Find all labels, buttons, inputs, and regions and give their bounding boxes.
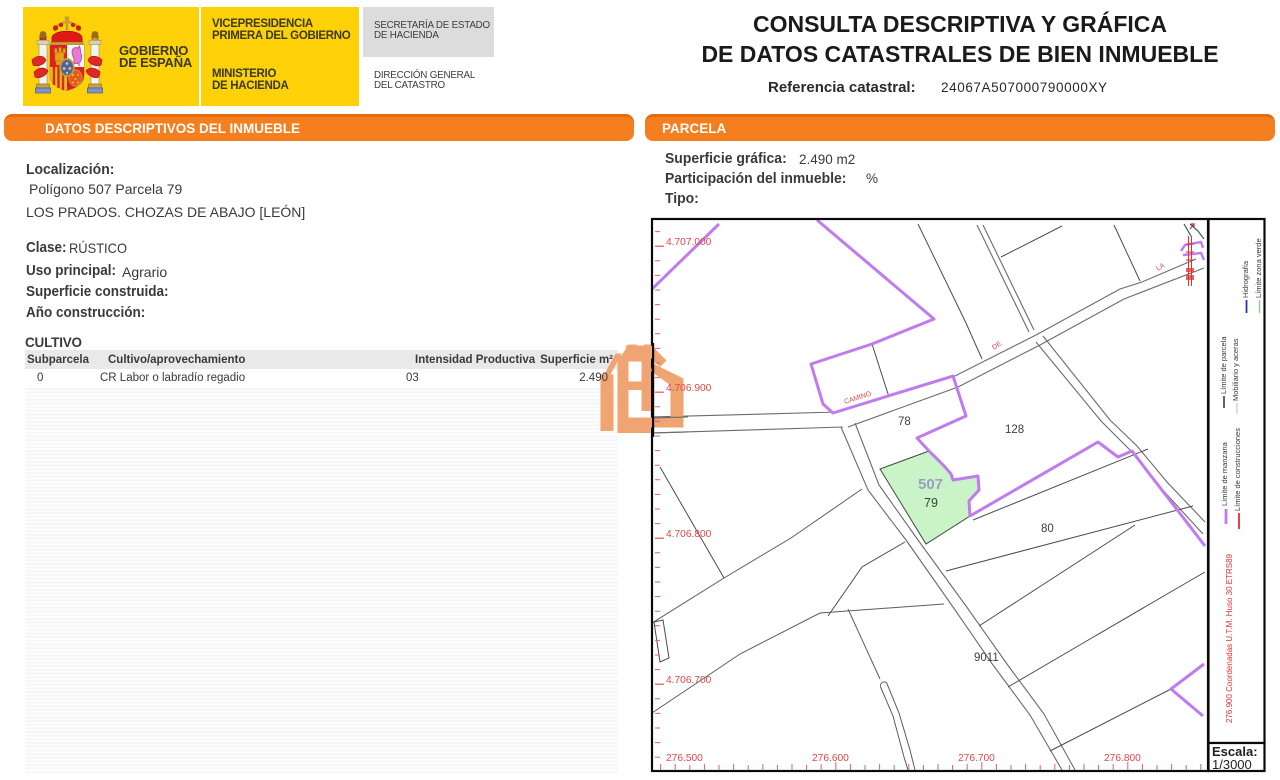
- svg-text:CAMINO: CAMINO: [843, 390, 872, 405]
- svg-text:276.800: 276.800: [1104, 753, 1141, 764]
- svg-text:80: 80: [1041, 523, 1054, 535]
- svg-text:276.500: 276.500: [666, 753, 703, 764]
- svg-text:4.706.700: 4.706.700: [666, 675, 712, 686]
- svg-text:4.706.800: 4.706.800: [666, 529, 712, 540]
- svg-text:507: 507: [918, 476, 943, 493]
- svg-text:9011: 9011: [974, 652, 999, 664]
- svg-text:276.600: 276.600: [812, 753, 849, 764]
- svg-text:DE: DE: [991, 340, 1003, 351]
- svg-text:276.700: 276.700: [958, 753, 995, 764]
- svg-text:LA: LA: [1155, 262, 1166, 273]
- svg-text:4.706.900: 4.706.900: [666, 383, 712, 394]
- svg-text:79: 79: [924, 496, 938, 510]
- svg-text:128: 128: [1005, 424, 1024, 436]
- svg-text:78: 78: [898, 416, 911, 428]
- svg-text:4.707.000: 4.707.000: [666, 237, 712, 248]
